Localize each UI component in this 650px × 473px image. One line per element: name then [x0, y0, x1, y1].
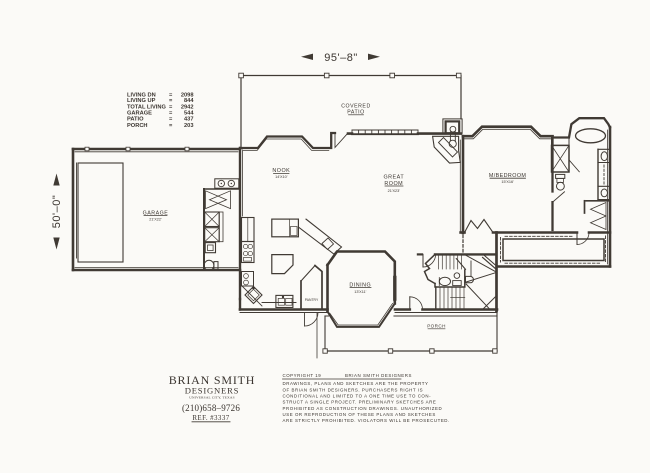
- svg-text:2942: 2942: [181, 104, 194, 110]
- svg-text:=: =: [169, 111, 173, 117]
- svg-text:LIVING UP: LIVING UP: [127, 98, 156, 104]
- svg-text:OF BRIAN SMITH DESIGNERS. PUR: OF BRIAN SMITH DESIGNERS. PURCHASERS RIG…: [283, 387, 424, 392]
- svg-text:PATIO: PATIO: [127, 117, 144, 123]
- svg-text:50'–0": 50'–0": [51, 195, 63, 228]
- svg-text:PANTRY: PANTRY: [305, 298, 319, 302]
- svg-text:13'X11': 13'X11': [354, 290, 366, 294]
- svg-text:STRUCT A SINGLE PROJECT. PREL: STRUCT A SINGLE PROJECT. PRELIMINARY SKE…: [283, 400, 437, 405]
- svg-text:544: 544: [184, 111, 194, 117]
- svg-text:=: =: [169, 98, 173, 104]
- svg-text:PORCH: PORCH: [427, 324, 446, 329]
- svg-text:15'X16': 15'X16': [501, 180, 514, 184]
- svg-text:14'X10': 14'X10': [275, 175, 288, 179]
- svg-text:DRAWINGS, PLANS AND SKETCHES A: DRAWINGS, PLANS AND SKETCHES ARE THE PRO…: [283, 381, 429, 386]
- svg-text:437: 437: [184, 117, 194, 123]
- svg-text:ARE STRICTLY PROHIBITED. VIOL: ARE STRICTLY PROHIBITED. VIOLATORS WILL …: [283, 418, 450, 423]
- svg-text:=: =: [169, 123, 173, 129]
- svg-text:BRIAN SMITH DESIGNERS: BRIAN SMITH DESIGNERS: [345, 373, 412, 378]
- svg-text:95'–8": 95'–8": [324, 52, 357, 64]
- svg-text:844: 844: [184, 98, 194, 104]
- svg-text:TOTAL LIVING: TOTAL LIVING: [127, 104, 166, 110]
- svg-text:PORCH: PORCH: [127, 123, 148, 129]
- svg-text:=: =: [169, 117, 173, 123]
- svg-text:GARAGE: GARAGE: [127, 111, 152, 117]
- svg-text:=: =: [169, 104, 173, 110]
- svg-text:GREAT: GREAT: [383, 174, 404, 180]
- svg-text:DESIGNERS: DESIGNERS: [185, 385, 239, 395]
- svg-text:21'X23': 21'X23': [388, 189, 401, 193]
- svg-text:PROHIBITED AS CONSTRUCTION DRA: PROHIBITED AS CONSTRUCTION DRAWINGS. UNA…: [283, 406, 443, 411]
- svg-text:(210)658–9726: (210)658–9726: [182, 403, 240, 413]
- svg-text:21'X22': 21'X22': [149, 218, 162, 222]
- svg-text:203: 203: [184, 123, 194, 129]
- svg-text:REF. #3337: REF. #3337: [192, 414, 229, 422]
- svg-text:COPYRIGHT 19: COPYRIGHT 19: [283, 373, 322, 378]
- svg-text:UNIVERSAL CITY, TEXAS: UNIVERSAL CITY, TEXAS: [189, 396, 234, 401]
- svg-text:CONDITIONAL AND LIMITED TO A O: CONDITIONAL AND LIMITED TO A ONE TIME US…: [283, 394, 432, 399]
- svg-text:USE OR REPRODUCTION OF THESE P: USE OR REPRODUCTION OF THESE PLANS AND S…: [283, 412, 436, 417]
